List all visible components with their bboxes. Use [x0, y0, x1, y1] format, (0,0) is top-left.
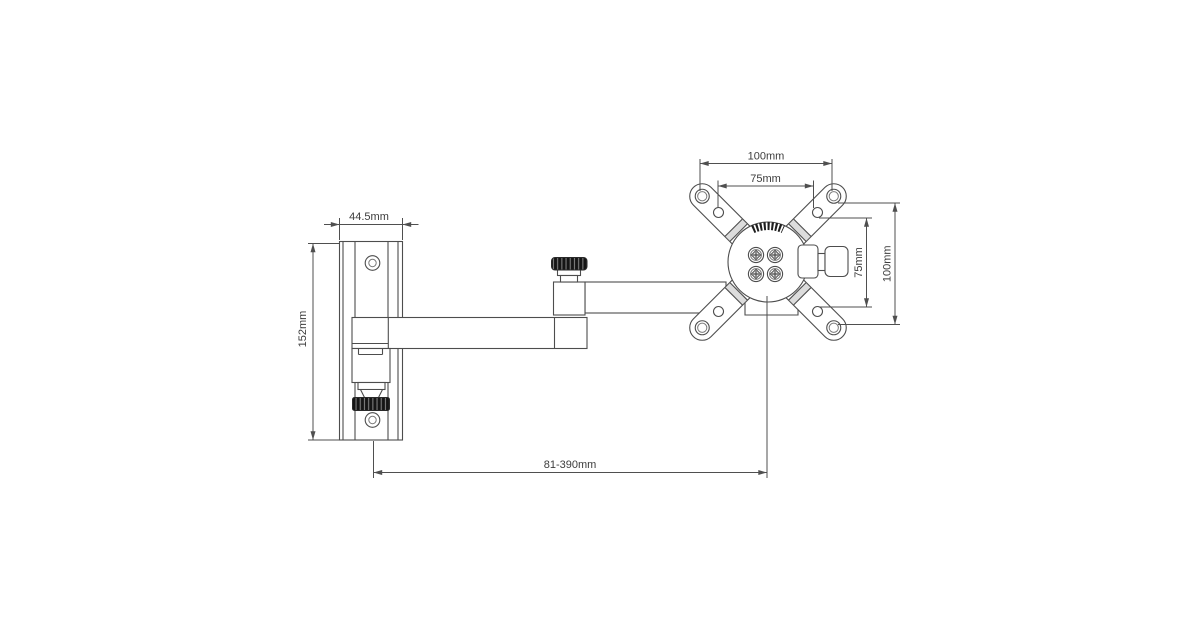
label-wall-plate-width: 44.5mm — [349, 211, 389, 223]
label-vesa-outer-height: 100mm — [882, 245, 894, 282]
wall-tension-knob — [353, 398, 390, 411]
technical-drawing: 100mm 75mm 75mm 100mm 44.5mm 152mm 81-39… — [0, 0, 1200, 630]
elbow-tension-knob — [552, 258, 588, 271]
label-vesa-outer-width: 100mm — [748, 151, 785, 163]
screw — [767, 247, 782, 262]
screw — [748, 266, 763, 281]
vesa-side-knob — [798, 245, 848, 278]
arm-upper-segment — [552, 258, 727, 316]
elbow-joint-block — [554, 282, 586, 315]
vesa-center-disc — [728, 222, 808, 302]
label-arm-extension-range: 81-390mm — [544, 459, 597, 471]
screw — [748, 247, 763, 262]
wall-pivot-housing — [352, 349, 390, 411]
screw — [767, 266, 782, 281]
wall-screw-hole-bottom — [365, 413, 380, 428]
drawing-page: 100mm 75mm 75mm 100mm 44.5mm 152mm 81-39… — [0, 0, 1200, 630]
label-vesa-inner-width: 75mm — [750, 173, 781, 185]
arm-lower-segment — [352, 318, 587, 349]
label-vesa-inner-height: 75mm — [853, 247, 865, 278]
label-wall-plate-height: 152mm — [297, 311, 309, 348]
wall-screw-hole-top — [365, 256, 380, 271]
